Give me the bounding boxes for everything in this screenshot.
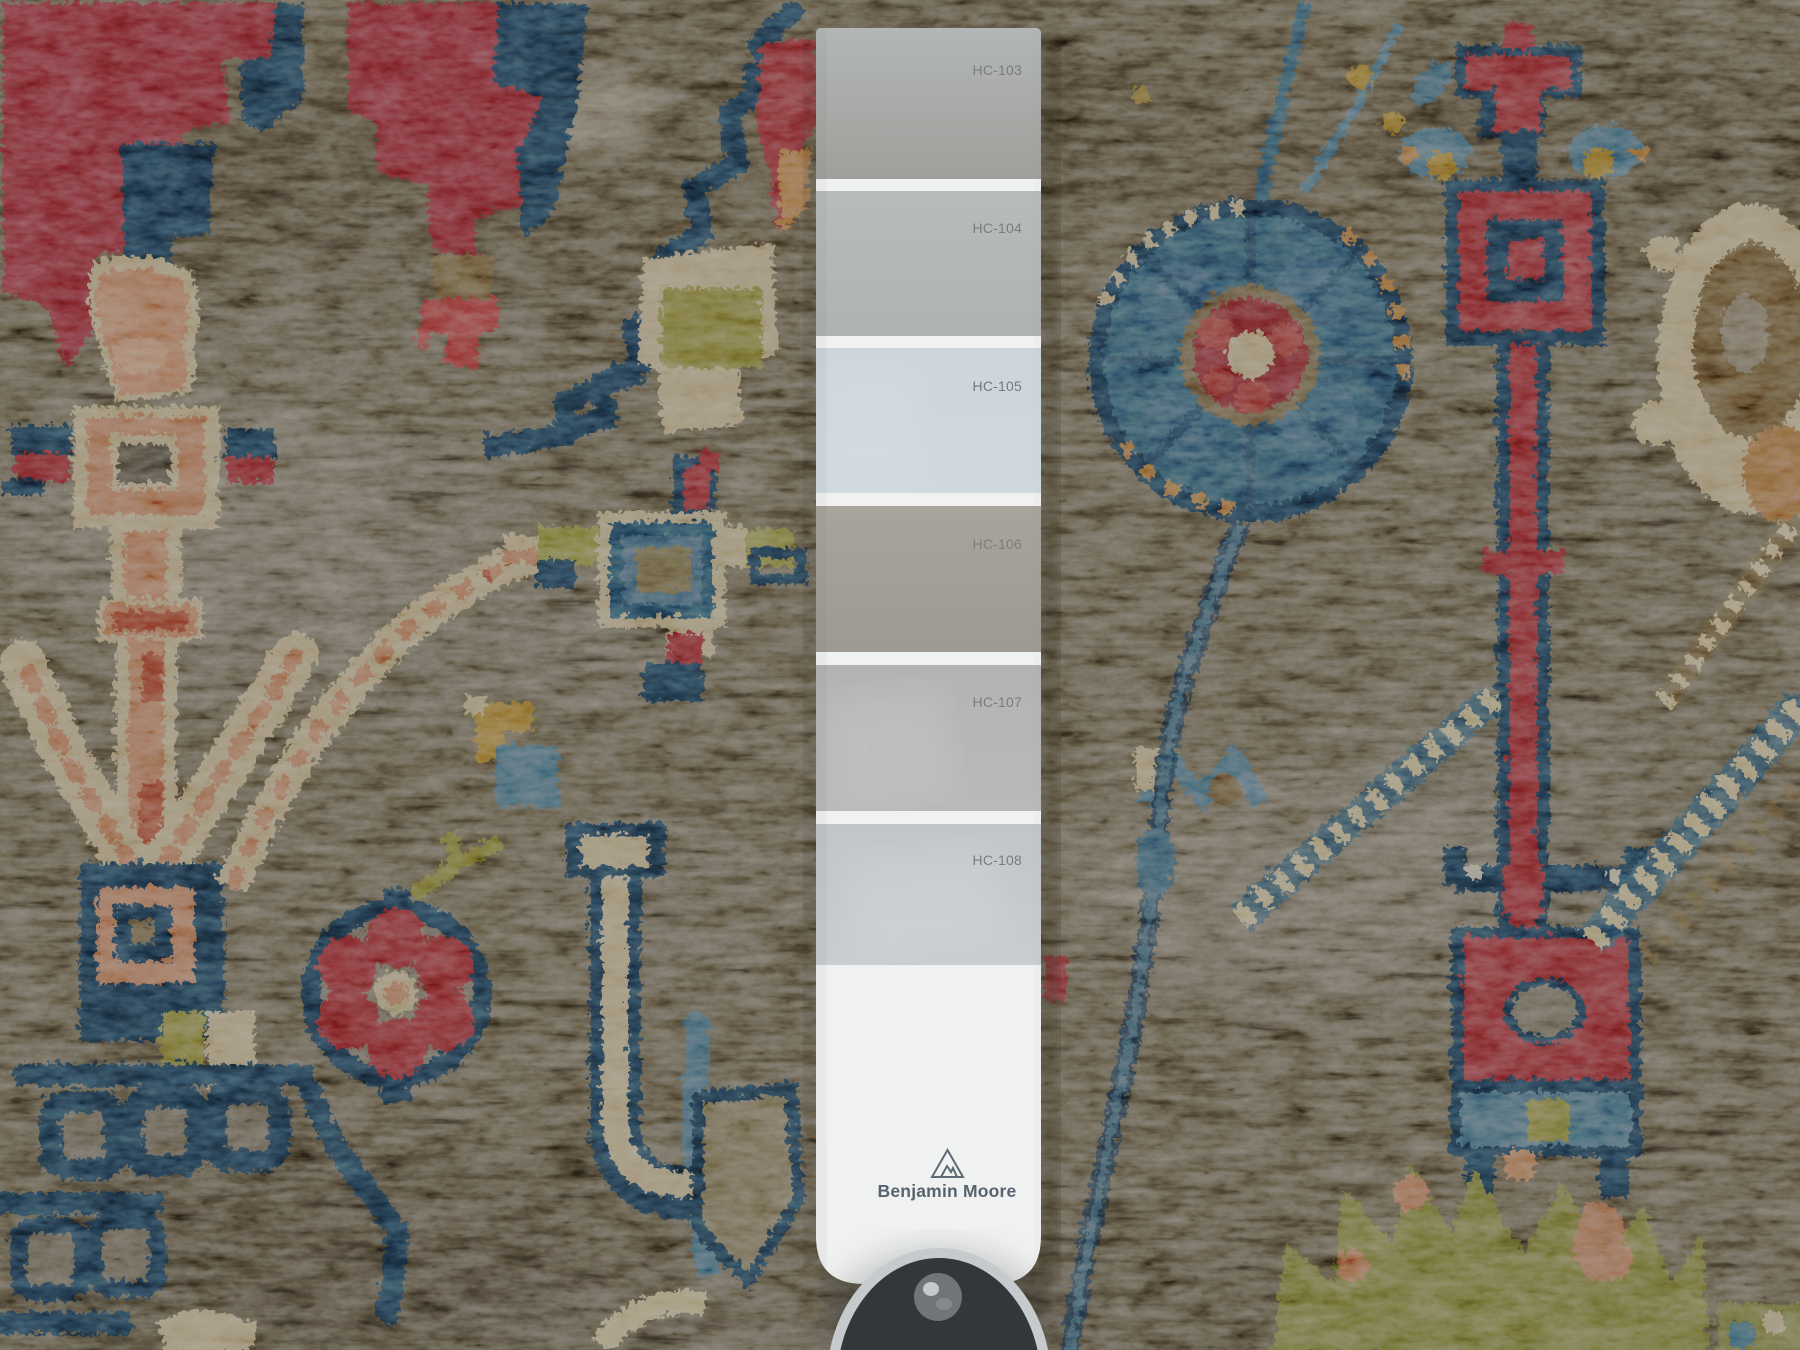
svg-text:HC-103: HC-103 <box>973 62 1022 78</box>
svg-text:HC-104: HC-104 <box>973 220 1022 236</box>
svg-text:HC-108: HC-108 <box>973 852 1022 868</box>
svg-text:HC-106: HC-106 <box>973 536 1022 552</box>
svg-text:HC-107: HC-107 <box>973 694 1022 710</box>
svg-text:HC-105: HC-105 <box>973 378 1022 394</box>
svg-text:Benjamin Moore: Benjamin Moore <box>878 1181 1017 1201</box>
